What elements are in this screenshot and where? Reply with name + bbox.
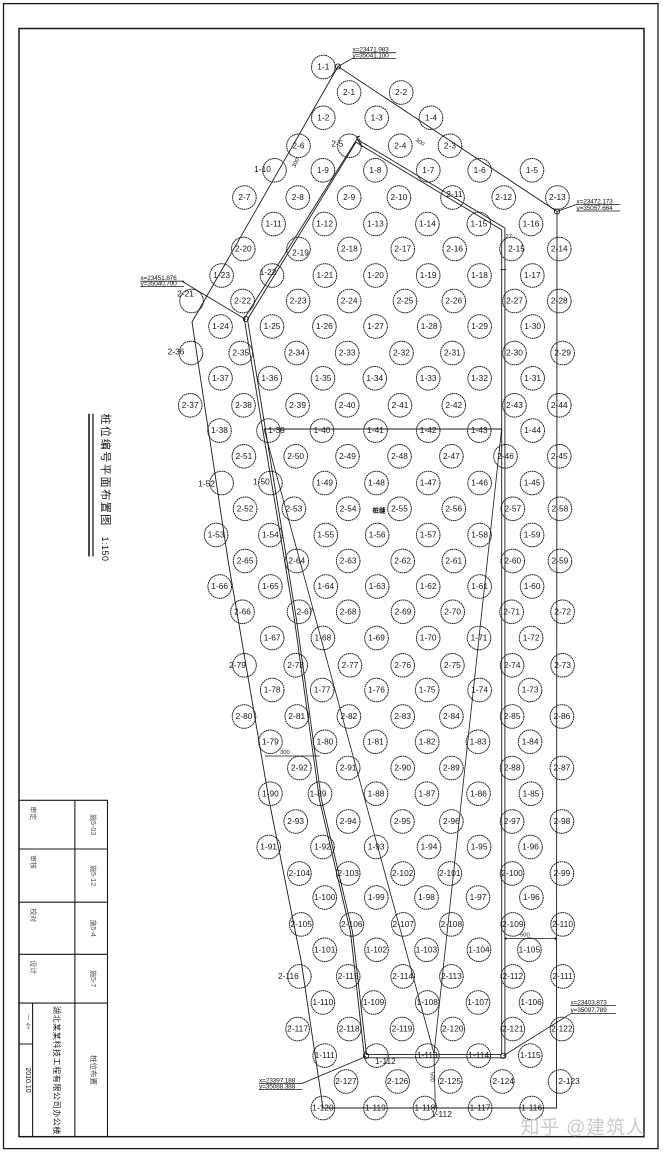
svg-text:27: 27 xyxy=(506,234,512,240)
svg-text:1-60: 1-60 xyxy=(524,581,541,591)
svg-text:办: 办 xyxy=(52,1109,62,1117)
svg-text:施5-4: 施5-4 xyxy=(89,920,98,937)
svg-text:1-37: 1-37 xyxy=(212,373,229,383)
svg-text:1-118: 1-118 xyxy=(414,1103,435,1113)
svg-text:2-110: 2-110 xyxy=(552,919,573,929)
svg-text:2-34: 2-34 xyxy=(288,348,305,358)
svg-text:2-90: 2-90 xyxy=(394,763,411,773)
svg-text:2-119: 2-119 xyxy=(392,1024,413,1034)
svg-text:1-47: 1-47 xyxy=(420,478,437,488)
svg-text:2-109: 2-109 xyxy=(502,919,524,929)
svg-text:1-28: 1-28 xyxy=(421,321,438,331)
svg-text:2-80: 2-80 xyxy=(236,711,253,721)
svg-text:2-118: 2-118 xyxy=(339,1024,360,1034)
svg-text:2-31: 2-31 xyxy=(444,348,461,358)
svg-text:2-105: 2-105 xyxy=(290,919,312,929)
svg-text:1-64: 1-64 xyxy=(317,581,334,591)
svg-text:2-62: 2-62 xyxy=(394,556,411,566)
svg-text:1-80: 1-80 xyxy=(317,736,334,746)
svg-text:面: 面 xyxy=(99,477,111,488)
svg-text:1-48: 1-48 xyxy=(368,478,385,488)
svg-text:1-45: 1-45 xyxy=(524,478,541,488)
svg-text:2-94: 2-94 xyxy=(340,816,357,826)
svg-text:审核: 审核 xyxy=(29,855,38,869)
svg-text:2-22: 2-22 xyxy=(234,296,251,306)
svg-text:北: 北 xyxy=(52,1015,61,1023)
svg-text:1-116: 1-116 xyxy=(521,1103,542,1113)
svg-text:2-19: 2-19 xyxy=(292,248,309,258)
svg-text:2-8: 2-8 xyxy=(292,192,304,202)
svg-text:1-72: 1-72 xyxy=(523,633,540,643)
svg-text:布: 布 xyxy=(99,489,112,500)
svg-text:2-60: 2-60 xyxy=(504,556,521,566)
svg-text:2-108: 2-108 xyxy=(441,919,463,929)
svg-text:1-81: 1-81 xyxy=(367,736,384,746)
svg-text:1-9: 1-9 xyxy=(317,165,329,175)
svg-text:1-1: 1-1 xyxy=(317,62,329,72)
svg-text:2-49: 2-49 xyxy=(339,451,356,461)
svg-text:2-86: 2-86 xyxy=(553,711,570,721)
svg-text:1-103: 1-103 xyxy=(416,944,438,954)
svg-text:2-81: 2-81 xyxy=(288,711,305,721)
svg-text:2-68: 2-68 xyxy=(340,606,357,616)
svg-text:科: 科 xyxy=(52,1040,62,1048)
svg-text:2-57: 2-57 xyxy=(504,503,521,513)
svg-text:技: 技 xyxy=(52,1049,62,1057)
svg-text:2-21: 2-21 xyxy=(177,289,194,299)
svg-text:平: 平 xyxy=(99,464,111,475)
svg-text:桩位布置: 桩位布置 xyxy=(89,1055,99,1085)
svg-text:2-76: 2-76 xyxy=(394,660,411,670)
svg-text:2-89: 2-89 xyxy=(443,763,460,773)
svg-text:2-124: 2-124 xyxy=(493,1076,515,1086)
svg-text:2-13: 2-13 xyxy=(549,192,566,202)
svg-text:500: 500 xyxy=(520,932,530,938)
svg-text:1-5: 1-5 xyxy=(526,165,538,175)
svg-text:1-100: 1-100 xyxy=(314,892,336,902)
svg-text:1-104: 1-104 xyxy=(468,944,490,954)
svg-text:1-89: 1-89 xyxy=(310,788,327,798)
svg-text:2-6: 2-6 xyxy=(292,140,304,150)
svg-text:1-26: 1-26 xyxy=(316,321,333,331)
svg-text:1-96: 1-96 xyxy=(523,892,540,902)
svg-text:2-17: 2-17 xyxy=(394,244,411,254)
svg-text:2-41: 2-41 xyxy=(392,400,409,410)
svg-text:2-50: 2-50 xyxy=(287,451,304,461)
svg-text:1-109: 1-109 xyxy=(363,997,385,1007)
svg-text:有: 有 xyxy=(52,1075,62,1083)
svg-text:一 4+: 一 4+ xyxy=(24,1014,31,1030)
svg-text:2-4: 2-4 xyxy=(394,140,406,150)
svg-text:2-116: 2-116 xyxy=(278,971,299,981)
svg-text:1-82: 1-82 xyxy=(419,736,436,746)
svg-text:1-7: 1-7 xyxy=(422,165,434,175)
svg-text:2-42: 2-42 xyxy=(445,400,462,410)
svg-text:1-115: 1-115 xyxy=(520,1050,541,1060)
svg-text:程: 程 xyxy=(52,1066,61,1074)
svg-text:2-115: 2-115 xyxy=(338,971,359,981)
svg-text:1-83: 1-83 xyxy=(470,736,487,746)
svg-text:2-71: 2-71 xyxy=(503,606,520,616)
svg-text:2-101: 2-101 xyxy=(439,868,461,878)
svg-text:1-10: 1-10 xyxy=(254,164,271,174)
svg-text:1-16: 1-16 xyxy=(523,219,540,229)
svg-text:2010.10: 2010.10 xyxy=(24,1067,31,1092)
svg-text:2-3: 2-3 xyxy=(444,140,456,150)
svg-text:2-28: 2-28 xyxy=(551,296,568,306)
svg-text:2-56: 2-56 xyxy=(445,503,462,513)
svg-text:2-96: 2-96 xyxy=(443,816,460,826)
svg-text:1-46: 1-46 xyxy=(471,478,488,488)
svg-text:2-37: 2-37 xyxy=(182,400,199,410)
svg-text:1-17: 1-17 xyxy=(524,270,541,280)
svg-text:1-102: 1-102 xyxy=(366,944,388,954)
svg-text:2-122: 2-122 xyxy=(551,1024,573,1034)
svg-text:公: 公 xyxy=(52,1118,61,1126)
svg-text:2-39: 2-39 xyxy=(289,400,306,410)
svg-text:2-69: 2-69 xyxy=(395,606,412,616)
svg-text:2-126: 2-126 xyxy=(387,1076,409,1086)
svg-text:2-88: 2-88 xyxy=(504,763,521,773)
svg-text:1-106: 1-106 xyxy=(520,997,542,1007)
svg-text:2-102: 2-102 xyxy=(392,868,414,878)
svg-text:2-14: 2-14 xyxy=(551,244,568,254)
svg-text:1-27: 1-27 xyxy=(367,321,384,331)
svg-text:2-40: 2-40 xyxy=(339,400,356,410)
svg-text:1-105: 1-105 xyxy=(519,944,541,954)
svg-text:2-107: 2-107 xyxy=(393,919,415,929)
svg-text:2-26: 2-26 xyxy=(445,296,462,306)
svg-text:1-119: 1-119 xyxy=(365,1103,386,1113)
svg-text:2-5: 2-5 xyxy=(331,138,343,148)
svg-text:2-12: 2-12 xyxy=(495,192,512,202)
svg-text:2-117: 2-117 xyxy=(287,1024,308,1034)
svg-text:1-50: 1-50 xyxy=(253,477,270,487)
svg-text:1-85: 1-85 xyxy=(523,788,540,798)
svg-text:2-46: 2-46 xyxy=(497,451,514,461)
svg-text:1-2: 1-2 xyxy=(317,112,329,122)
svg-text:1-22: 1-22 xyxy=(260,267,277,277)
svg-text:2-74: 2-74 xyxy=(504,660,521,670)
svg-text:1-23: 1-23 xyxy=(213,270,230,280)
svg-text:1-107: 1-107 xyxy=(467,997,489,1007)
svg-text:1-88: 1-88 xyxy=(368,788,385,798)
svg-text:1-19: 1-19 xyxy=(420,270,437,280)
svg-text:某: 某 xyxy=(52,1023,61,1031)
svg-text:1-11: 1-11 xyxy=(265,219,282,229)
svg-text:2-23: 2-23 xyxy=(290,296,307,306)
svg-text:1-14: 1-14 xyxy=(419,219,436,229)
svg-text:1-94: 1-94 xyxy=(421,842,438,852)
svg-text:1-13: 1-13 xyxy=(367,219,384,229)
svg-text:2-83: 2-83 xyxy=(394,711,411,721)
svg-text:1-33: 1-33 xyxy=(420,373,437,383)
svg-text:2-127: 2-127 xyxy=(335,1076,357,1086)
svg-text:2-7: 2-7 xyxy=(238,192,250,202)
svg-text:2-91: 2-91 xyxy=(340,763,357,773)
svg-text:位: 位 xyxy=(99,426,113,437)
svg-text:1-3: 1-3 xyxy=(371,112,383,122)
svg-text:公: 公 xyxy=(52,1092,61,1100)
svg-text:2-61: 2-61 xyxy=(445,556,462,566)
svg-text:1-31: 1-31 xyxy=(524,373,541,383)
svg-text:2-72: 2-72 xyxy=(554,606,571,616)
svg-text:2-82: 2-82 xyxy=(340,711,357,721)
svg-text:1-38: 1-38 xyxy=(211,425,228,435)
svg-text:2-93: 2-93 xyxy=(287,816,304,826)
svg-text:2-1: 2-1 xyxy=(343,87,355,97)
svg-text:2-95: 2-95 xyxy=(394,816,411,826)
svg-text:1-32: 1-32 xyxy=(471,373,488,383)
svg-text:2-75: 2-75 xyxy=(444,660,461,670)
svg-text:1-108: 1-108 xyxy=(416,997,438,1007)
svg-text:2-73: 2-73 xyxy=(554,660,571,670)
svg-text:2-104: 2-104 xyxy=(289,868,311,878)
svg-text:1-29: 1-29 xyxy=(471,321,488,331)
svg-text:2-112: 2-112 xyxy=(502,971,523,981)
svg-text:2-123: 2-123 xyxy=(558,1076,580,1086)
svg-text:1:150: 1:150 xyxy=(100,536,110,561)
svg-text:2-67: 2-67 xyxy=(297,606,314,616)
svg-text:湖: 湖 xyxy=(52,1006,61,1014)
svg-text:审定: 审定 xyxy=(29,806,38,820)
svg-text:1-68: 1-68 xyxy=(314,633,331,643)
svg-text:1-54: 1-54 xyxy=(262,530,279,540)
svg-text:1-84: 1-84 xyxy=(522,736,539,746)
svg-text:1-78: 1-78 xyxy=(264,685,281,695)
svg-text:1-120: 1-120 xyxy=(312,1103,334,1113)
svg-text:1-49: 1-49 xyxy=(316,478,333,488)
svg-text:1-25: 1-25 xyxy=(264,321,281,331)
svg-text:1-44: 1-44 xyxy=(524,425,541,435)
svg-text:知乎 @建筑人: 知乎 @建筑人 xyxy=(521,1117,646,1139)
svg-text:1-15: 1-15 xyxy=(470,219,487,229)
svg-text:1-62: 1-62 xyxy=(420,581,437,591)
svg-text:1-39: 1-39 xyxy=(268,425,285,435)
svg-text:2-9: 2-9 xyxy=(343,192,355,202)
svg-text:楼: 楼 xyxy=(52,1126,62,1134)
svg-text:1-86: 1-86 xyxy=(470,788,487,798)
svg-text:1-87: 1-87 xyxy=(418,788,435,798)
svg-text:1-6: 1-6 xyxy=(474,165,486,175)
svg-text:1-66: 1-66 xyxy=(211,581,228,591)
svg-text:2-30: 2-30 xyxy=(506,348,523,358)
svg-text:2-53: 2-53 xyxy=(285,503,302,513)
svg-text:2-79: 2-79 xyxy=(229,660,246,670)
svg-text:2-33: 2-33 xyxy=(339,348,356,358)
svg-text:2-32: 2-32 xyxy=(393,348,410,358)
svg-text:1-41: 1-41 xyxy=(367,425,384,435)
svg-text:1-12: 1-12 xyxy=(316,219,333,229)
svg-text:2-98: 2-98 xyxy=(553,816,570,826)
svg-text:1-55: 1-55 xyxy=(317,530,334,540)
svg-text:2-64: 2-64 xyxy=(288,556,305,566)
svg-text:2-70: 2-70 xyxy=(444,606,461,616)
svg-text:1-21: 1-21 xyxy=(316,270,333,280)
svg-text:2-45: 2-45 xyxy=(551,451,568,461)
svg-text:某: 某 xyxy=(52,1032,61,1040)
svg-text:1-8: 1-8 xyxy=(369,165,381,175)
svg-text:2-11: 2-11 xyxy=(446,189,463,199)
svg-text:500: 500 xyxy=(429,1072,435,1082)
svg-text:1-73: 1-73 xyxy=(522,685,539,695)
svg-text:2-44: 2-44 xyxy=(551,400,568,410)
svg-text:1-113: 1-113 xyxy=(417,1050,438,1060)
svg-text:300: 300 xyxy=(280,750,290,756)
svg-text:2-18: 2-18 xyxy=(341,244,358,254)
svg-text:2-29: 2-29 xyxy=(554,348,571,358)
svg-text:2-120: 2-120 xyxy=(442,1024,464,1034)
svg-text:2-113: 2-113 xyxy=(441,971,462,981)
svg-text:号: 号 xyxy=(99,451,112,462)
svg-text:1-114: 1-114 xyxy=(468,1050,489,1060)
svg-text:2-65: 2-65 xyxy=(237,556,254,566)
svg-text:1-56: 1-56 xyxy=(369,530,386,540)
svg-text:1-18: 1-18 xyxy=(471,270,488,280)
svg-text:1-76: 1-76 xyxy=(368,685,385,695)
svg-text:2-20: 2-20 xyxy=(235,244,252,254)
svg-text:1-20: 1-20 xyxy=(367,270,384,280)
svg-text:施5-12: 施5-12 xyxy=(89,865,98,886)
svg-text:1-57: 1-57 xyxy=(420,530,437,540)
svg-text:1-58: 1-58 xyxy=(471,530,488,540)
svg-text:1-63: 1-63 xyxy=(369,581,386,591)
svg-text:1-70: 1-70 xyxy=(420,633,437,643)
svg-text:2-36: 2-36 xyxy=(168,347,185,357)
svg-text:1-96: 1-96 xyxy=(522,842,539,852)
svg-text:2-2: 2-2 xyxy=(395,87,407,97)
svg-text:桩: 桩 xyxy=(99,414,113,425)
svg-text:图: 图 xyxy=(99,514,112,525)
svg-text:1-99: 1-99 xyxy=(368,892,385,902)
svg-text:1-61: 1-61 xyxy=(471,581,488,591)
svg-text:2-99: 2-99 xyxy=(553,868,570,878)
svg-text:2-54: 2-54 xyxy=(340,503,357,513)
svg-text:1-52: 1-52 xyxy=(198,479,215,489)
svg-text:2-48: 2-48 xyxy=(391,451,408,461)
svg-text:1-36: 1-36 xyxy=(261,373,278,383)
svg-text:2-111: 2-111 xyxy=(552,971,573,981)
svg-text:1-101: 1-101 xyxy=(314,944,336,954)
svg-text:2-51: 2-51 xyxy=(235,451,252,461)
svg-text:编: 编 xyxy=(99,439,113,450)
svg-text:1-4: 1-4 xyxy=(425,112,437,122)
svg-text:2-24: 2-24 xyxy=(341,296,358,306)
svg-text:1-92: 1-92 xyxy=(314,842,331,852)
svg-text:1-79: 1-79 xyxy=(262,736,279,746)
svg-text:施5-03: 施5-03 xyxy=(89,814,98,835)
svg-text:限: 限 xyxy=(52,1083,61,1091)
svg-text:1-95: 1-95 xyxy=(471,842,488,852)
svg-text:2-85: 2-85 xyxy=(504,711,521,721)
svg-text:1-24: 1-24 xyxy=(212,321,229,331)
svg-text:2-58: 2-58 xyxy=(551,503,568,513)
svg-text:校对: 校对 xyxy=(29,908,38,922)
svg-text:2-121: 2-121 xyxy=(502,1024,524,1034)
svg-text:2-10: 2-10 xyxy=(390,192,407,202)
svg-text:1-71: 1-71 xyxy=(471,633,488,643)
svg-text:1-111: 1-111 xyxy=(315,1050,336,1060)
svg-text:施5-7: 施5-7 xyxy=(89,970,98,987)
svg-text:1-112: 1-112 xyxy=(375,1056,396,1066)
svg-text:2-84: 2-84 xyxy=(443,711,460,721)
svg-text:1-59: 1-59 xyxy=(524,530,541,540)
svg-text:2-87: 2-87 xyxy=(553,763,570,773)
svg-text:2-15: 2-15 xyxy=(508,244,525,254)
svg-text:工: 工 xyxy=(52,1058,61,1066)
svg-text:2-43: 2-43 xyxy=(506,400,523,410)
svg-text:1-74: 1-74 xyxy=(471,685,488,695)
svg-text:2-114: 2-114 xyxy=(392,971,413,981)
svg-text:1-98: 1-98 xyxy=(418,892,435,902)
svg-text:2-78: 2-78 xyxy=(287,660,304,670)
svg-text:1-117: 1-117 xyxy=(470,1103,491,1113)
svg-text:1-69: 1-69 xyxy=(368,633,385,643)
svg-text:1-42: 1-42 xyxy=(420,425,437,435)
svg-text:2-55: 2-55 xyxy=(391,503,408,513)
svg-text:2-103: 2-103 xyxy=(337,868,359,878)
svg-text:2-77: 2-77 xyxy=(342,660,359,670)
svg-text:1-97: 1-97 xyxy=(470,892,487,902)
svg-text:置: 置 xyxy=(99,502,112,513)
svg-text:2-97: 2-97 xyxy=(504,816,521,826)
svg-text:2-125: 2-125 xyxy=(440,1076,462,1086)
svg-text:2-92: 2-92 xyxy=(291,763,308,773)
svg-text:2-38: 2-38 xyxy=(235,400,252,410)
svg-text:1-43: 1-43 xyxy=(471,425,488,435)
svg-text:2-47: 2-47 xyxy=(443,451,460,461)
svg-text:2-63: 2-63 xyxy=(340,556,357,566)
svg-text:1-93: 1-93 xyxy=(368,842,385,852)
svg-text:2-66: 2-66 xyxy=(234,606,251,616)
svg-text:2-27: 2-27 xyxy=(506,296,523,306)
svg-text:1-75: 1-75 xyxy=(419,685,436,695)
svg-text:2-52: 2-52 xyxy=(237,503,254,513)
svg-text:设计: 设计 xyxy=(29,960,38,974)
svg-text:1-53: 1-53 xyxy=(208,530,225,540)
svg-text:1-35: 1-35 xyxy=(315,373,332,383)
svg-text:1-77: 1-77 xyxy=(314,685,331,695)
svg-text:2-25: 2-25 xyxy=(397,296,414,306)
svg-text:1-67: 1-67 xyxy=(264,633,281,643)
svg-text:1-65: 1-65 xyxy=(262,581,279,591)
svg-text:2-106: 2-106 xyxy=(341,919,363,929)
svg-text:1-30: 1-30 xyxy=(524,321,541,331)
svg-text:2-59: 2-59 xyxy=(551,556,568,566)
svg-text:1-110: 1-110 xyxy=(312,997,333,1007)
svg-text:1-91: 1-91 xyxy=(260,842,277,852)
svg-text:2-35: 2-35 xyxy=(232,348,249,358)
svg-text:1-90: 1-90 xyxy=(262,788,279,798)
svg-text:1-34: 1-34 xyxy=(366,373,383,383)
svg-text:1-40: 1-40 xyxy=(314,425,331,435)
svg-text:2-16: 2-16 xyxy=(446,244,463,254)
svg-text:桩缝: 桩缝 xyxy=(373,506,387,515)
svg-text:2-100: 2-100 xyxy=(501,868,523,878)
svg-text:司: 司 xyxy=(52,1101,61,1109)
